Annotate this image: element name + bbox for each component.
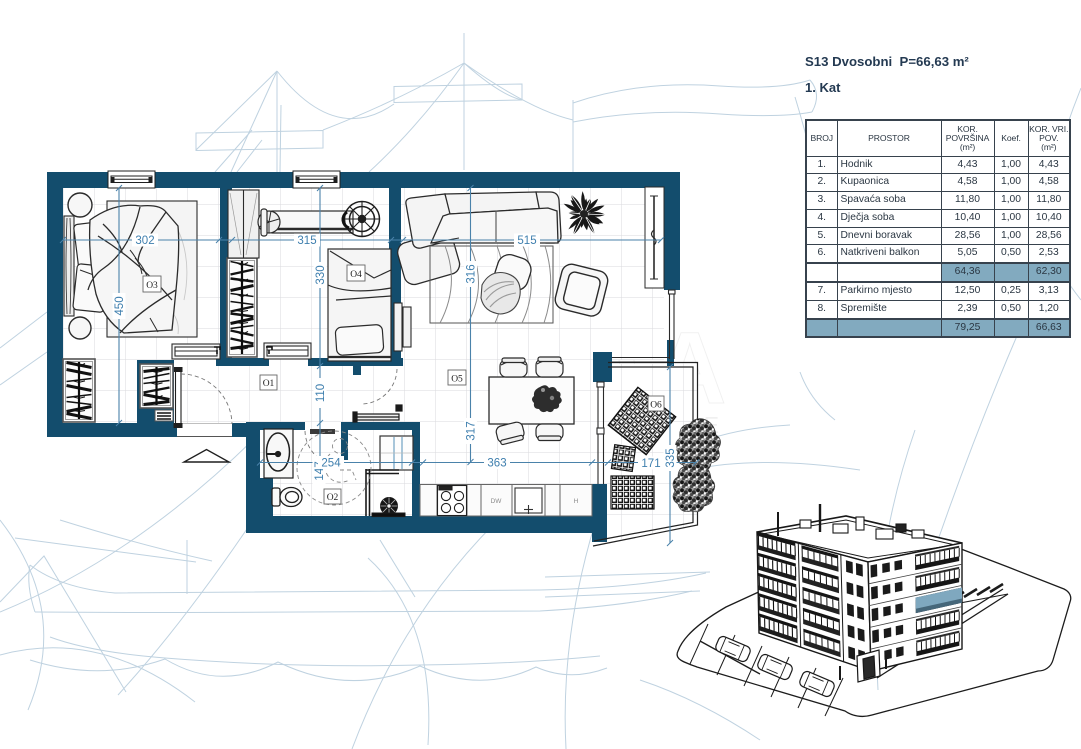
svg-text:315: 315 — [297, 235, 316, 247]
svg-text:O5: O5 — [451, 375, 463, 385]
svg-text:O1: O1 — [263, 379, 275, 389]
svg-text:O4: O4 — [350, 270, 362, 280]
svg-text:363: 363 — [487, 458, 506, 470]
svg-text:515: 515 — [517, 235, 536, 247]
svg-text:O3: O3 — [146, 281, 158, 291]
svg-text:450: 450 — [114, 296, 126, 315]
svg-text:317: 317 — [466, 421, 478, 440]
svg-text:DW: DW — [491, 498, 503, 505]
svg-text:316: 316 — [466, 264, 478, 283]
svg-text:O6: O6 — [650, 401, 662, 411]
svg-text:H: H — [574, 498, 579, 505]
svg-text:110: 110 — [315, 384, 327, 402]
svg-text:330: 330 — [315, 265, 327, 284]
svg-text:335: 335 — [665, 448, 677, 467]
svg-text:171: 171 — [641, 458, 660, 470]
svg-text:302: 302 — [135, 235, 154, 247]
svg-text:O2: O2 — [327, 493, 339, 503]
svg-text:254: 254 — [321, 458, 341, 470]
